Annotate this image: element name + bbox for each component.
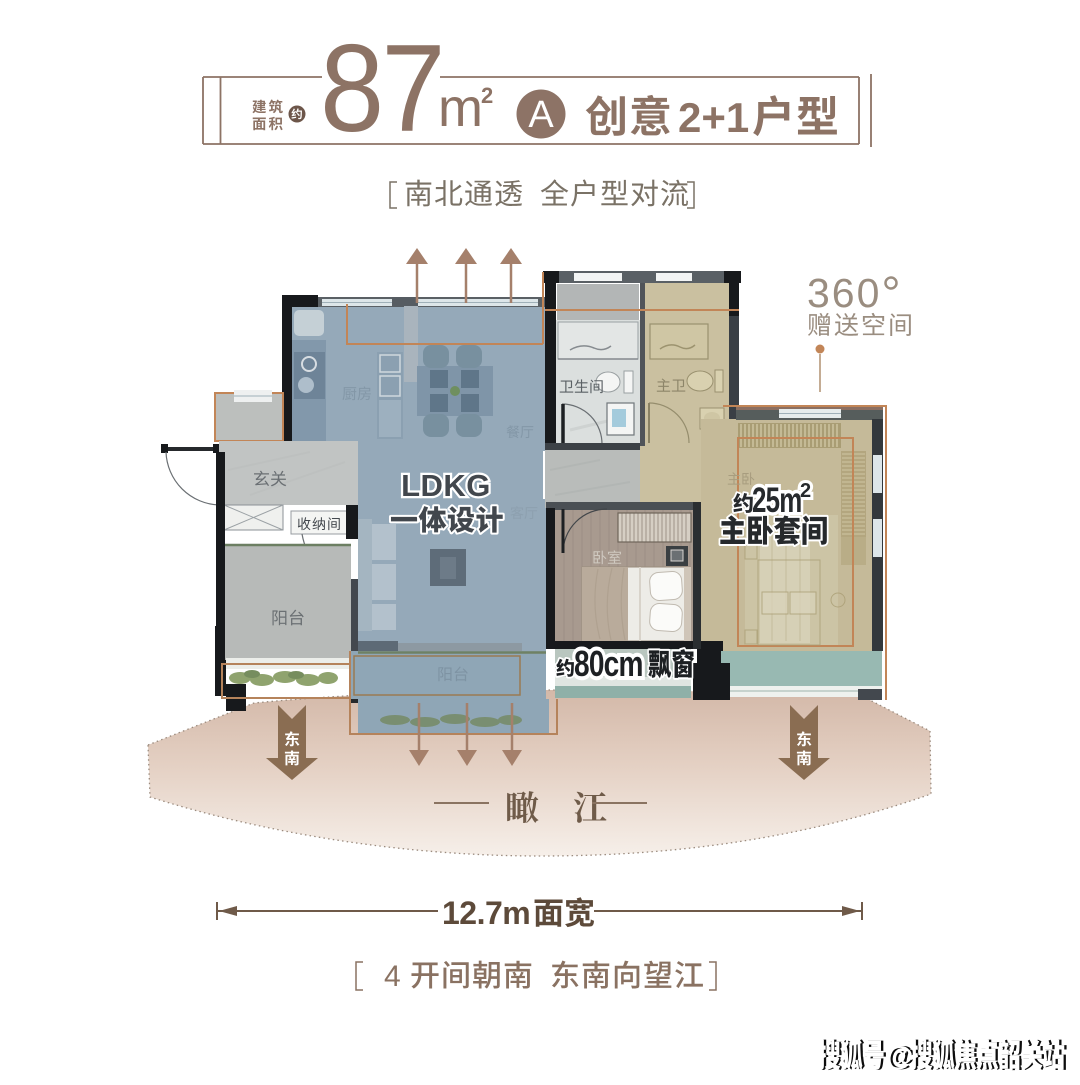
svg-text:4: 4 [384, 960, 401, 993]
svg-text:87: 87 [320, 20, 443, 158]
svg-text:A: A [528, 94, 554, 136]
svg-text:2: 2 [481, 83, 493, 108]
svg-text:@: @ [886, 1041, 912, 1071]
svg-text:m: m [438, 78, 483, 138]
svg-text:80cm: 80cm [574, 644, 643, 684]
svg-text:2: 2 [800, 480, 811, 502]
svg-text:LDKG: LDKG [401, 468, 491, 503]
svg-text:360: 360 [807, 270, 881, 316]
svg-text:12.7m: 12.7m [442, 895, 530, 931]
svg-text:25m: 25m [752, 480, 802, 520]
svg-text:2+1: 2+1 [678, 94, 749, 141]
